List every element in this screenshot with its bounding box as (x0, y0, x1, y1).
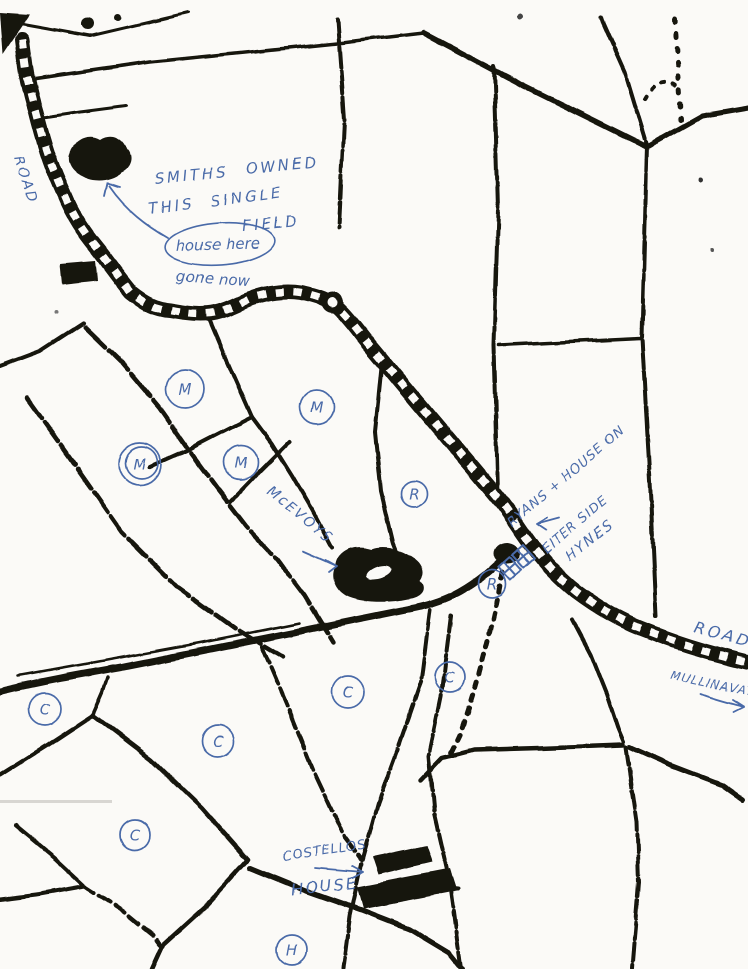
road-bend-eye (328, 298, 338, 308)
field-boundary-line (152, 860, 248, 969)
svg-text:M: M (311, 399, 324, 417)
field-boundary-line (375, 362, 401, 562)
mcevoys-arrow (303, 551, 337, 572)
svg-text:C: C (40, 701, 51, 719)
field-marker-m: M (166, 370, 204, 408)
field-boundary-line (25, 33, 424, 80)
mullinavat-arrow (701, 694, 744, 712)
field-marker-r: R (401, 481, 427, 507)
smiths-note-line2: THIS SINGLE (147, 184, 284, 218)
road-side-stub (60, 261, 98, 285)
costellos-label: COSTELLOS (281, 837, 368, 865)
field-marker-c: C (29, 693, 61, 725)
hand-drawn-field-map: ROAD SMITHS OWNED THIS SINGLE FIELD hous… (0, 0, 748, 969)
house-here-label: house here (176, 234, 261, 255)
black-linework-layer (0, 12, 748, 969)
field-marker-c: C (202, 725, 234, 757)
svg-text:C: C (130, 827, 141, 845)
field-boundary-line (626, 747, 639, 969)
dotted-boundary (645, 82, 681, 99)
field-marker-c: C (120, 820, 150, 850)
svg-text:C: C (445, 669, 456, 687)
costellos-house-label: HOUSE (290, 873, 358, 899)
ryans-note-line1: RYANS + HOUSE ON (505, 423, 628, 530)
ink-speck (517, 14, 523, 20)
solid-road-edge (18, 623, 300, 676)
field-boundary-line (499, 338, 641, 345)
gone-now-label: gone now (176, 267, 251, 290)
svg-text:H: H (286, 942, 297, 960)
field-marker-c: C (435, 662, 465, 692)
field-boundary-line (0, 886, 85, 899)
svg-text:M: M (134, 456, 147, 474)
field-boundary-line (93, 715, 248, 860)
smiths-note-line3: FIELD (242, 212, 301, 235)
svg-text:R: R (487, 576, 497, 594)
ink-speck (698, 178, 703, 183)
dotted-boundary (675, 20, 681, 120)
field-boundary-line (337, 20, 344, 228)
field-boundary-line (12, 13, 188, 36)
field-marker-c: C (332, 676, 364, 708)
ink-speck (710, 248, 714, 252)
field-boundary-line (85, 886, 161, 947)
ink-speck (82, 18, 94, 30)
scanned-map-page: ROAD SMITHS OWNED THIS SINGLE FIELD hous… (0, 0, 748, 969)
field-marker-r: R (478, 570, 506, 598)
field-boundary-line (206, 311, 252, 417)
field-boundary-line (630, 747, 742, 799)
field-marker-m: M (300, 390, 334, 424)
ryans-arrow (537, 518, 559, 530)
svg-text:C: C (213, 733, 224, 751)
field-marker-m: M (224, 445, 258, 479)
road-label-top-left: ROAD (10, 154, 40, 206)
field-boundary-line (494, 66, 498, 495)
scan-streak (0, 800, 112, 803)
field-boundary-line (93, 677, 108, 715)
svg-text:R: R (409, 486, 419, 504)
svg-text:M: M (235, 454, 248, 472)
field-boundary-line (16, 826, 85, 886)
lane-edge (343, 610, 430, 969)
mullinavat-label: MULLINAVAT (669, 668, 748, 699)
ink-speck (55, 310, 59, 314)
field-boundary-line (33, 106, 126, 119)
field-boundary-line (573, 620, 624, 742)
field-boundary-line (0, 323, 83, 366)
svg-text:M: M (179, 381, 192, 399)
smiths-house-blob (69, 137, 131, 181)
field-boundary-line (0, 715, 93, 775)
ink-speck (115, 14, 122, 21)
field-marker-h: H (277, 935, 307, 965)
svg-text:C: C (343, 684, 354, 702)
costellos-house-blob (372, 845, 433, 875)
smiths-note-line1: SMITHS OWNED (154, 153, 320, 188)
field-boundary-line (262, 647, 361, 859)
field-boundary-line (647, 108, 748, 147)
